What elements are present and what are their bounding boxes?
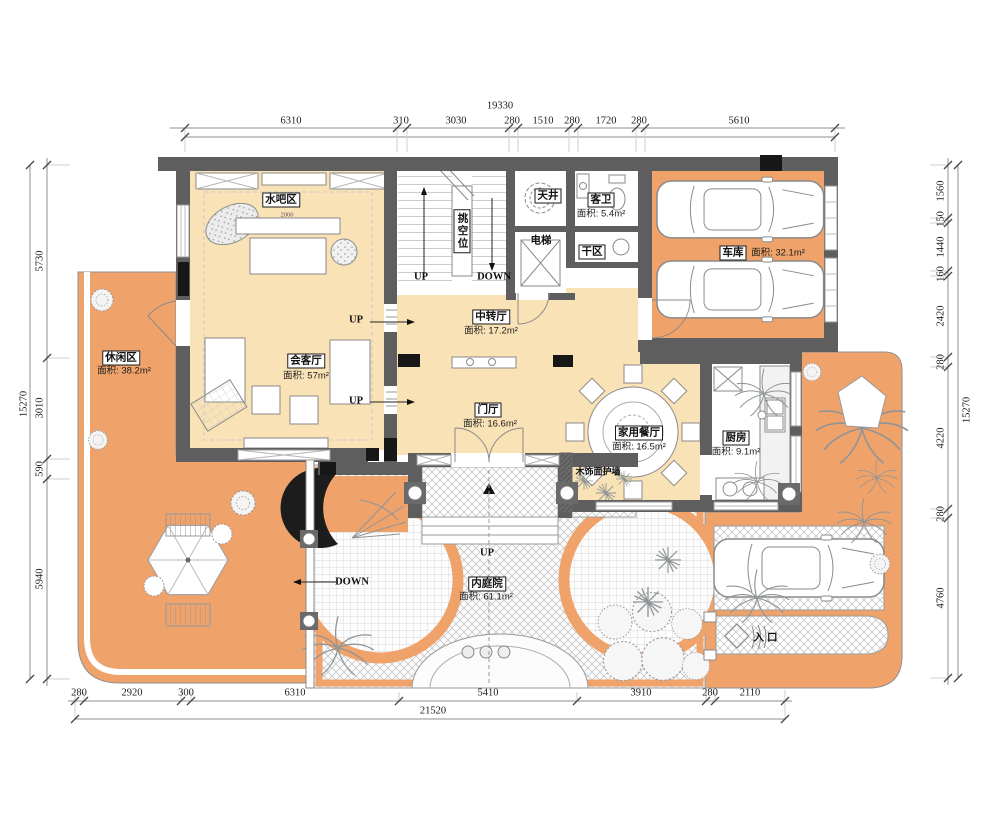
bush-icon [91, 289, 113, 311]
room-label-cheku: 车库 [720, 246, 747, 261]
dim-left-seg-0: 5730 [35, 251, 46, 272]
dim-right-seg-0: 1560 [936, 181, 947, 202]
room-label-chufang: 厨房 [723, 431, 750, 446]
entrance-label: 入口 [754, 630, 781, 645]
console-table [452, 357, 516, 368]
room-label-zhongzhuan: 中转厅 [472, 310, 510, 325]
dim-right-seg-8: 4760 [936, 588, 947, 609]
void-space-label: 挑空位 [454, 209, 471, 253]
dim-top-seg-7: 280 [631, 116, 647, 127]
dim-bottom-seg-7: 2110 [740, 688, 761, 699]
lounge-chair-icon [166, 514, 210, 536]
room-label-ganqu: 干区 [579, 245, 606, 260]
room-area-cheku: 面积: 32.1m² [751, 248, 805, 259]
lounge-chair-icon [166, 604, 210, 626]
dim-right-seg-3: 160 [936, 266, 947, 282]
dim-top-seg-8: 5610 [729, 116, 750, 127]
dim-bottom-seg-6: 280 [702, 688, 718, 699]
garage-car-icon [657, 177, 824, 242]
room-area-kewei: 面积: 5.4m² [577, 209, 626, 220]
room-area-zhongzhuan: 面积: 17.2m² [464, 326, 518, 337]
room-label-neitingyuan: 内庭院 [468, 577, 506, 592]
dim-left-seg-1: 3010 [35, 398, 46, 419]
dim-bottom-seg-1: 2920 [122, 688, 143, 699]
room-label-kewei: 客卫 [588, 193, 615, 208]
down-label-terrace: DOWN [335, 577, 369, 588]
room-area-huiketing: 面积: 57m² [283, 371, 329, 382]
room-area-neitingyuan: 面积: 61.1m² [459, 592, 513, 603]
room-label-tianjing: 天井 [535, 189, 562, 204]
room-label-xiuxian: 休闲区 [102, 351, 140, 366]
sink-icon [765, 398, 785, 432]
armchair-icon [330, 340, 370, 404]
dim-left-total: 15270 [19, 391, 30, 417]
dim-left-seg-3: 5940 [35, 569, 46, 590]
down-label-stairs: DOWN [477, 272, 511, 283]
room-label-huiketing: 会客厅 [287, 354, 325, 369]
room-area-canting: 面积: 16.5m² [612, 442, 666, 453]
room-area-chufang: 面积: 9.1m² [712, 447, 761, 458]
dim-bottom-seg-3: 6310 [285, 688, 306, 699]
room-area-xiuxian: 面积: 38.2m² [97, 366, 151, 377]
parked-car-icon [714, 535, 884, 601]
up-label-hall-1: UP [349, 315, 363, 326]
dim-top-seg-6: 1720 [596, 116, 617, 127]
room-label-menting: 门厅 [475, 403, 502, 418]
dim-right-seg-6: 4220 [936, 428, 947, 449]
dim-top-seg-0: 6310 [281, 116, 302, 127]
dim-right-total: 15270 [962, 397, 973, 423]
dim-bottom-seg-2: 300 [178, 688, 194, 699]
dim-top-seg-1: 310 [393, 116, 409, 127]
entry-steps [422, 517, 558, 544]
wood-wall-label: 木饰面护墙 [575, 465, 620, 478]
dim-top-total: 19330 [487, 101, 513, 112]
room-label-dianti: 电梯 [531, 233, 552, 248]
garage-car-icon [657, 257, 824, 322]
dim-right-seg-5: 280 [936, 354, 947, 370]
dim-top-seg-5: 280 [564, 116, 580, 127]
dim-bottom-seg-4: 5410 [478, 688, 499, 699]
dim-right-seg-2: 1440 [936, 237, 947, 258]
sofa-dim-label: 2000 [281, 212, 294, 219]
dim-top-seg-4: 1510 [533, 116, 554, 127]
room-area-menting: 面积: 16.6m² [463, 419, 517, 430]
dim-right-seg-7: 280 [936, 506, 947, 522]
sofa-icon [236, 218, 340, 234]
floorplan-page: 水吧区 会客厅 面积: 57m² 中转厅 面积: 17.2m² 门厅 面积: 1… [0, 0, 1000, 833]
porch-left-planter [318, 476, 408, 532]
basin-icon [613, 239, 629, 255]
room-label-shuiba: 水吧区 [262, 193, 300, 208]
dim-bottom-seg-5: 3910 [631, 688, 652, 699]
dim-bottom-seg-0: 280 [71, 688, 87, 699]
dim-left-seg-2: 590 [35, 461, 46, 477]
up-label-stairs: UP [414, 272, 428, 283]
dim-right-seg-1: 150 [936, 211, 947, 227]
up-label-courtyard: UP [480, 548, 494, 559]
dim-top-seg-3: 280 [504, 116, 520, 127]
shrub-icon [655, 547, 681, 573]
up-label-hall-2: UP [349, 396, 363, 407]
dim-top-seg-2: 3030 [446, 116, 467, 127]
dim-bottom-total: 21520 [420, 706, 446, 717]
fence-divider [306, 455, 314, 688]
room-label-canting: 家用餐厅 [615, 426, 663, 441]
dim-right-seg-4: 2420 [936, 306, 947, 327]
